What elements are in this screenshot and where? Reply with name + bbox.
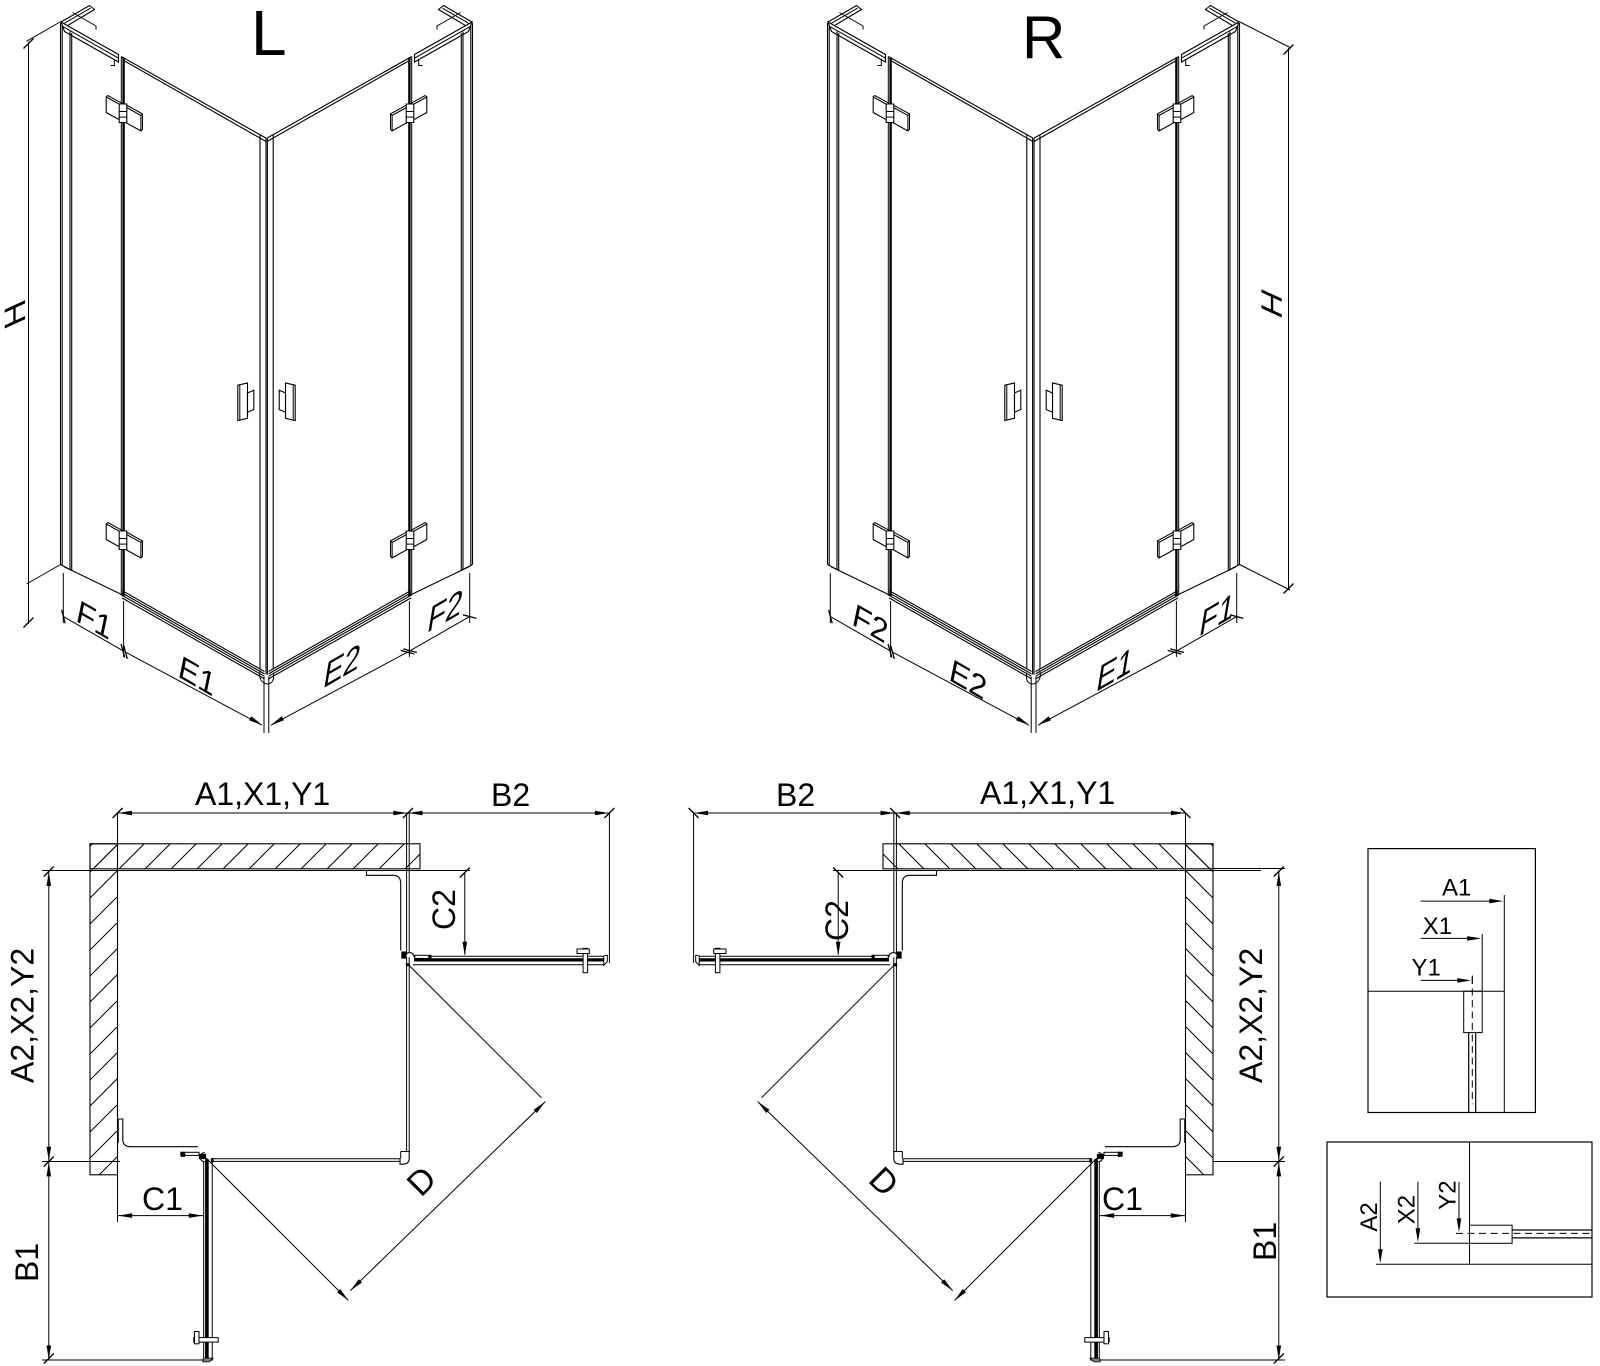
svg-text:X1: X1 (1423, 913, 1452, 940)
svg-text:C2: C2 (819, 900, 855, 941)
svg-text:B2: B2 (491, 777, 530, 813)
svg-text:Y1: Y1 (1412, 954, 1441, 981)
svg-text:R: R (1022, 5, 1065, 72)
svg-text:A2: A2 (1356, 1202, 1383, 1231)
svg-text:L: L (251, 0, 287, 69)
svg-text:A1,X1,Y1: A1,X1,Y1 (195, 776, 330, 812)
svg-text:A1,X1,Y1: A1,X1,Y1 (980, 775, 1115, 811)
svg-text:A1: A1 (1442, 874, 1471, 901)
svg-text:A2,X2,Y2: A2,X2,Y2 (1233, 948, 1269, 1083)
svg-text:B2: B2 (776, 777, 815, 813)
svg-text:C2: C2 (426, 889, 462, 930)
svg-text:A2,X2,Y2: A2,X2,Y2 (5, 948, 41, 1083)
svg-text:B1: B1 (9, 1243, 45, 1282)
svg-text:X2: X2 (1394, 1195, 1421, 1224)
svg-text:C1: C1 (142, 1181, 183, 1217)
svg-text:Y2: Y2 (1435, 1180, 1462, 1209)
svg-text:C1: C1 (1102, 1181, 1143, 1217)
svg-text:B1: B1 (1247, 1222, 1283, 1261)
